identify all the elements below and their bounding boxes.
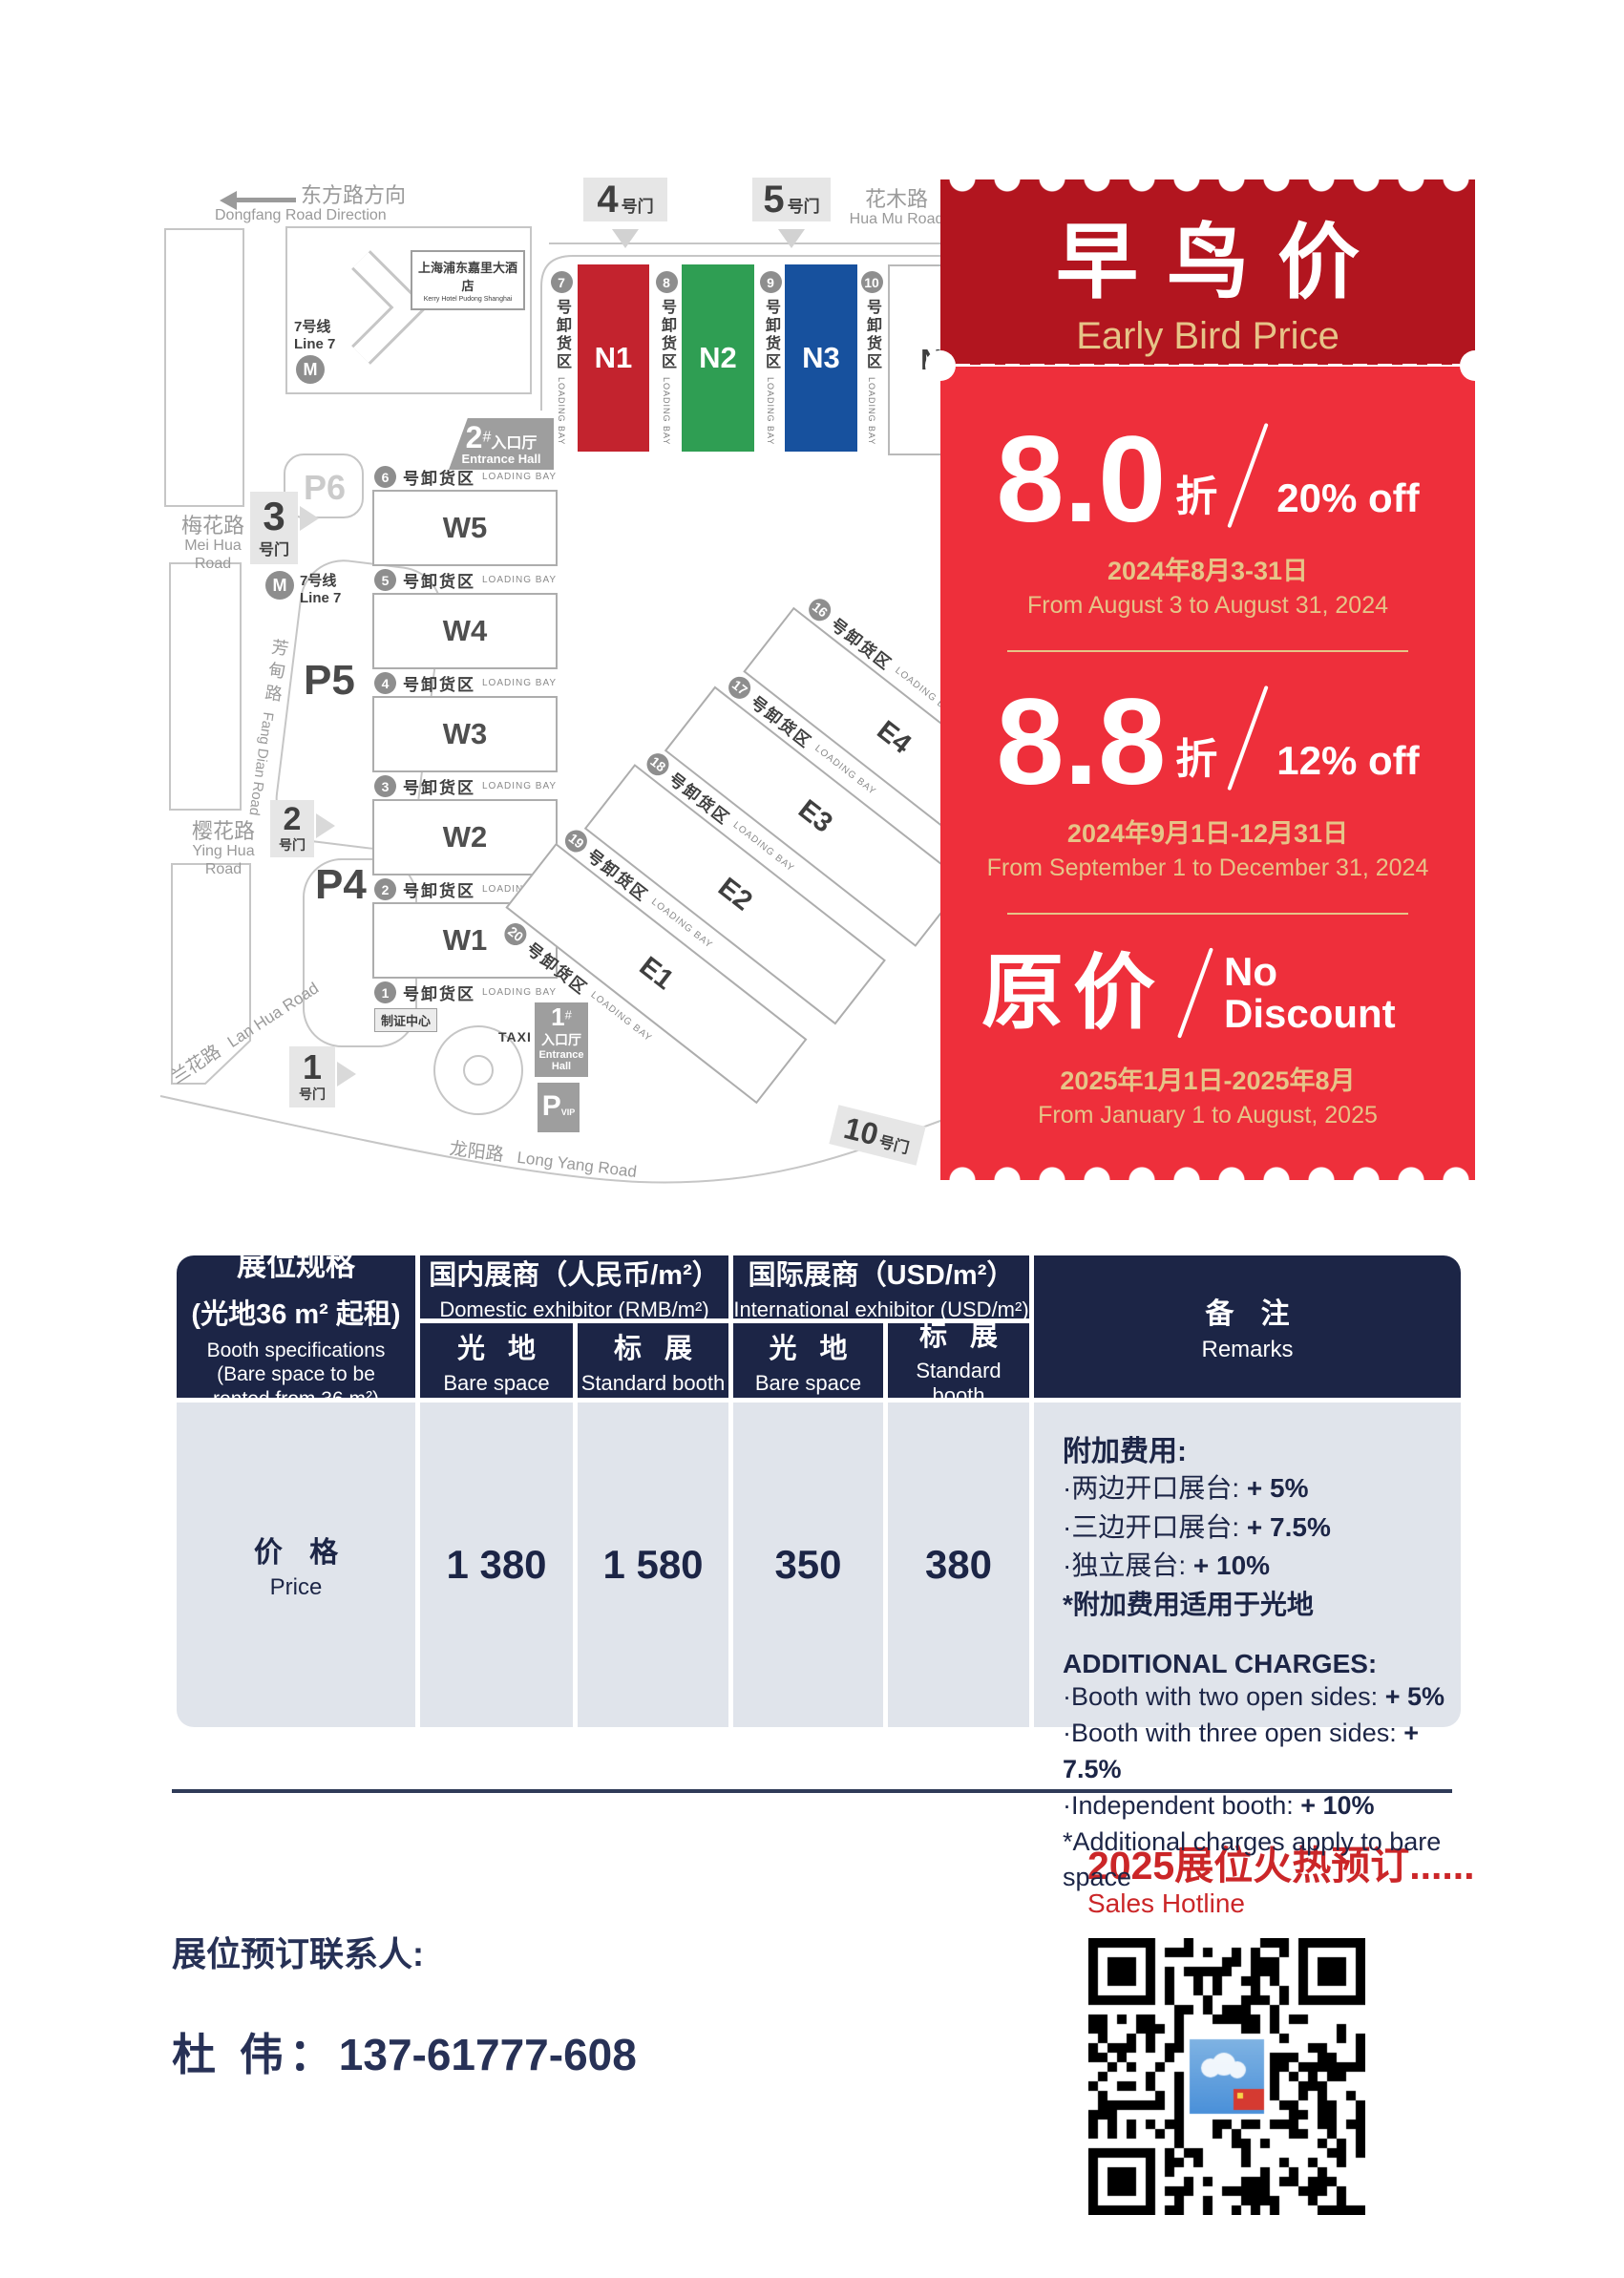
remarks-header-en: Remarks (1201, 1337, 1293, 1363)
loading-bay-1: 1号卸货区LOADING BAY (374, 981, 557, 1004)
subheader-international-bare: 光 地 Bare space (733, 1323, 883, 1398)
ticket-header: 早鸟价 Early Bird Price (940, 179, 1475, 365)
loading-bay-number: 6 (374, 466, 396, 488)
loading-bay-number: 5 (374, 569, 396, 591)
remarks-en-title: ADDITIONAL CHARGES: (1063, 1649, 1451, 1679)
entrance-1-en: Entrance Hall (535, 1049, 588, 1072)
remarks-en-block: ADDITIONAL CHARGES: ·Booth with two open… (1063, 1624, 1451, 1896)
loading-bay-number: 8 (656, 271, 678, 293)
hall-w3: W3 (372, 696, 558, 772)
booth-specs-zh1: 展位规格 (237, 1241, 355, 1284)
loading-bay-en: LOADING BAY (482, 472, 557, 482)
remarks-line: ·三边开口展台: + 7.5% (1063, 1508, 1331, 1548)
entrance-1-number: 1 (551, 1002, 564, 1031)
group-international-zh: 国际展商（USD/m²） (749, 1253, 1015, 1293)
remarks-line: ·Booth with three open sides: + 7.5% (1063, 1716, 1451, 1788)
gate-2-number: 2 (284, 803, 302, 835)
subheader-international-standard: 标 展 Standard booth (888, 1323, 1029, 1398)
loading-bay-zh: 号卸货区 (403, 671, 475, 695)
gate-5-number: 5 (763, 178, 784, 221)
loading-bay-8: 8号卸货区LOADING BAY (653, 271, 680, 445)
loading-bay-zh: 号卸货区 (403, 568, 475, 592)
remarks-en-lines: ·Booth with two open sides: + 5%·Booth w… (1063, 1679, 1451, 1824)
tier1-date-zh: 2024年8月3-31日 (940, 550, 1475, 587)
remarks-line: ·Booth with two open sides: + 5% (1063, 1679, 1451, 1716)
hall-n2: N2 (682, 264, 754, 452)
loading-bay-en: LOADING BAY (482, 575, 557, 585)
loading-bay-10: 10号卸货区LOADING BAY (858, 271, 885, 445)
tier2-date-en: From September 1 to December 31, 2024 (940, 854, 1475, 882)
parking-p4: P4 (315, 861, 367, 909)
road-meihua-en: Mei Hua Road (170, 538, 256, 573)
hall-w2: W2 (372, 799, 558, 875)
entrance-2-en: Entrance Hall (449, 452, 554, 466)
kerry-hotel-zh: 上海浦东嘉里大酒店 (416, 258, 519, 294)
gate-2: 2 号门 (270, 800, 314, 857)
tier1-slash-icon (1228, 423, 1269, 528)
loading-bay-9: 9号卸货区LOADING BAY (757, 271, 784, 445)
parking-p6: P6 (304, 468, 346, 508)
hall-w4: W4 (372, 593, 558, 669)
loading-bay-en: LOADING BAY (557, 377, 566, 445)
price-label-zh: 价 格 (244, 1529, 348, 1571)
loading-bay-en: LOADING BAY (482, 781, 557, 791)
gate-2-suffix: 号门 (279, 835, 306, 854)
loading-bay-zh: 号卸货区 (403, 981, 475, 1004)
loading-bay-number: 1 (374, 981, 396, 1003)
hall-n1: N1 (578, 264, 649, 452)
entrance-hall-1: 1# 入口厅 Entrance Hall (535, 1002, 588, 1077)
ticket-notch-right (1460, 350, 1490, 381)
booth-specs-zh2: (光地36 m² 起租) (191, 1292, 400, 1332)
loading-bay-en: LOADING BAY (662, 377, 671, 445)
ticket-dashed-divider (956, 364, 1460, 367)
tier1-percent-off: 20% off (1276, 475, 1419, 521)
gate-3-suffix: 号门 (259, 537, 289, 559)
gate-5-arrow-icon (778, 229, 805, 262)
booking-contact-label: 展位预订联系人: (172, 1927, 424, 1976)
road-huamu: 花木路 Hua Mu Road (844, 187, 949, 229)
entrance-2-hash: # (482, 430, 491, 446)
loading-bay-en: LOADING BAY (867, 377, 876, 445)
wechat-qr-code (1088, 1938, 1365, 2215)
subheader-domestic-bare: 光 地 Bare space (420, 1323, 573, 1398)
row-label-price: 价 格 Price (177, 1403, 415, 1727)
tier2-percent-off: 12% off (1276, 738, 1419, 784)
road-huamu-zh: 花木路 (844, 187, 949, 211)
contact-line: 杜 伟：137-61777-608 (172, 2020, 637, 2083)
kerry-hotel-en: Kerry Hotel Pudong Shanghai (416, 296, 519, 303)
entrance-1-hash: # (565, 1008, 572, 1023)
booth-specs-en1: Booth specifications (207, 1339, 386, 1362)
taxi-label: TAXI (498, 1029, 532, 1044)
loading-bay-3: 3号卸货区LOADING BAY (374, 774, 557, 798)
loading-bay-zh: 号卸货区 (655, 299, 678, 371)
loading-bay-6: 6号卸货区LOADING BAY (374, 465, 557, 489)
metro-line7-zh-2: 7号线 (300, 573, 336, 589)
loading-bay-zh: 号卸货区 (550, 299, 573, 371)
metro-line7-en-2: Line 7 (300, 590, 341, 606)
sub-bare-zh-2: 光 地 (761, 1326, 854, 1366)
loading-bay-zh: 号卸货区 (860, 299, 883, 371)
remarks-zh-lines: ·两边开口展台: + 5%·三边开口展台: + 7.5%·独立展台: + 10% (1063, 1469, 1331, 1586)
parking-p5: P5 (304, 657, 355, 705)
loading-bay-zh: 号卸货区 (403, 877, 475, 901)
loading-bay-en: LOADING BAY (482, 678, 557, 688)
road-meihua-zh: 梅花路 (170, 514, 256, 538)
gate-1-suffix: 号门 (299, 1085, 326, 1104)
loading-bay-zh: 号卸货区 (403, 774, 475, 798)
loading-bay-number: 9 (760, 271, 782, 293)
road-dongfang-en: Dongfang Road Direction (215, 207, 377, 224)
entrance-1-zh: 入口厅 (535, 1030, 588, 1049)
tier3-no-discount: No Discount (1224, 951, 1434, 1035)
gate-4-arrow-icon (612, 229, 639, 262)
gate-1: 1 号门 (289, 1046, 335, 1107)
road-yinghua-en: Ying Hua Road (176, 843, 271, 878)
metro-line7-label-hotel: 7号线 Line 7 (294, 319, 335, 353)
kerry-hotel-label: 上海浦东嘉里大酒店 Kerry Hotel Pudong Shanghai (411, 250, 525, 310)
price-domestic-standard: 1 580 (578, 1403, 728, 1727)
loading-bay-number: 7 (551, 271, 573, 293)
metro-line7-icon-2: M (265, 571, 294, 600)
sub-standard-zh-1: 标 展 (606, 1326, 700, 1366)
sub-bare-en-1: Bare space (443, 1371, 549, 1396)
tier2-date-zh: 2024年9月1日-12月31日 (940, 812, 1475, 850)
sub-bare-en-2: Bare space (755, 1371, 861, 1396)
credential-center: 制证中心 (374, 1008, 437, 1032)
gate-4-suffix: 号门 (622, 188, 654, 226)
contact-name: 杜 伟： (172, 2030, 339, 2079)
tier3-date-en: From January 1 to August, 2025 (940, 1102, 1475, 1129)
ticket-body: 8.0 折 20% off 2024年8月3-31日 From August 3… (940, 367, 1475, 1180)
road-dongfang-zh: 东方路方向 (301, 183, 377, 207)
tier-original-price: 原价 No Discount 2025年1月1日-2025年8月 From Ja… (940, 945, 1475, 1129)
loading-bay-zh: 号卸货区 (403, 465, 475, 489)
entrance-2-zh: 入口厅 (491, 435, 537, 452)
tier1-date-en: From August 3 to August 31, 2024 (940, 592, 1475, 620)
road-huamu-en: Hua Mu Road (844, 211, 949, 228)
metro-line7-en: Line 7 (294, 336, 335, 352)
gate-3-arrow-icon (300, 506, 331, 531)
price-table: 展位规格 (光地36 m² 起租) Booth specifications (… (177, 1255, 1461, 1727)
loading-bay-4: 4号卸货区LOADING BAY (374, 671, 557, 695)
ticket-title-en: Early Bird Price (940, 315, 1475, 358)
gate-5: 5 号门 (752, 178, 831, 221)
tier3-slash-icon (1177, 947, 1213, 1038)
gate-5-suffix: 号门 (788, 188, 820, 226)
gate-1-number: 1 (303, 1050, 322, 1085)
loading-bay-en: LOADING BAY (482, 987, 557, 998)
tier-early-bird-1: 8.0 折 20% off 2024年8月3-31日 From August 3… (940, 367, 1475, 620)
tier1-discount: 8.0 (996, 431, 1166, 531)
gate-10-number: 10 (840, 1107, 883, 1154)
price-domestic-bare: 1 380 (420, 1403, 573, 1727)
remarks-body: 附加费用: ·两边开口展台: + 5%·三边开口展台: + 7.5%·独立展台:… (1034, 1403, 1461, 1727)
remarks-zh-title: 附加费用: (1063, 1427, 1187, 1469)
loading-bay-en: LOADING BAY (766, 377, 775, 445)
loading-bay-number: 2 (374, 878, 396, 900)
ticket-title-zh: 早鸟价 (940, 179, 1475, 304)
road-meihua: 梅花路 Mei Hua Road (170, 514, 256, 573)
price-label-en: Price (270, 1574, 323, 1601)
sub-standard-en-1: Standard booth (581, 1371, 725, 1396)
ticket-notch-left (925, 350, 956, 381)
tier1-unit: 折 (1175, 462, 1217, 523)
remarks-line: ·Independent booth: + 10% (1063, 1788, 1451, 1825)
vip-parking: PVIP (538, 1083, 580, 1132)
group-domestic-en: Domestic exhibitor (RMB/m²) (439, 1297, 708, 1322)
tier3-label: 原价 (981, 952, 1165, 1034)
tier-early-bird-2: 8.8 折 12% off 2024年9月1日-12月31日 From Sept… (940, 683, 1475, 882)
ticket-divider-gold-1 (1007, 650, 1408, 652)
ticket-divider-gold-2 (1007, 913, 1408, 915)
price-international-standard: 380 (888, 1403, 1029, 1727)
tier2-discount: 8.8 (996, 693, 1166, 793)
vip-parking-p: P (542, 1090, 561, 1122)
gate-4: 4 号门 (583, 178, 667, 221)
gate-1-arrow-icon (337, 1062, 369, 1086)
sub-standard-zh-2: 标 展 (912, 1314, 1005, 1354)
metro-line7-icon: M (296, 355, 325, 384)
contact-phone: 137-61777-608 (339, 2030, 637, 2079)
hall-w5: W5 (372, 490, 558, 566)
sub-standard-en-2: Standard booth (888, 1359, 1029, 1408)
gate-2-arrow-icon (316, 813, 348, 838)
remarks-header-zh: 备 注 (1195, 1290, 1298, 1332)
table-group-domestic: 国内展商（人民币/m²） Domestic exhibitor (RMB/m²) (420, 1255, 728, 1318)
loading-bay-5: 5号卸货区LOADING BAY (374, 568, 557, 592)
table-remarks-header: 备 注 Remarks (1034, 1255, 1461, 1398)
table-group-international: 国际展商（USD/m²） International exhibitor (US… (733, 1255, 1029, 1318)
early-bird-ticket: 早鸟价 Early Bird Price 8.0 折 20% off 2024年… (940, 179, 1475, 1180)
vip-parking-vip: VIP (561, 1107, 576, 1117)
tier3-date-zh: 2025年1月1日-2025年8月 (940, 1060, 1475, 1097)
metro-line7-zh: 7号线 (294, 319, 330, 335)
group-domestic-zh: 国内展商（人民币/m²） (429, 1253, 720, 1293)
loading-bay-number: 3 (374, 775, 396, 797)
remarks-line: ·两边开口展台: + 5% (1063, 1469, 1331, 1508)
road-yinghua-zh: 樱花路 (176, 819, 271, 843)
subheader-domestic-standard: 标 展 Standard booth (578, 1323, 728, 1398)
remarks-en-note: *Additional charges apply to bare space (1063, 1825, 1451, 1897)
entrance-2-number: 2 (466, 420, 483, 454)
table-col-booth-specs: 展位规格 (光地36 m² 起租) Booth specifications (… (177, 1255, 415, 1398)
gate-4-number: 4 (597, 178, 618, 221)
remarks-line: ·独立展台: + 10% (1063, 1547, 1331, 1586)
hall-n3: N3 (785, 264, 857, 452)
remarks-zh-note: *附加费用适用于光地 (1063, 1586, 1314, 1625)
loading-bay-number: 4 (374, 672, 396, 694)
gate-3: 3 号门 (250, 492, 298, 564)
loading-bay-number: 10 (861, 271, 883, 293)
gate-10-suffix: 号门 (875, 1126, 913, 1167)
road-dongfang: 东方路方向 Dongfang Road Direction (215, 183, 377, 225)
road-yinghua: 樱花路 Ying Hua Road (176, 819, 271, 878)
metro-line7-label-2: 7号线 Line 7 (300, 573, 341, 607)
flyer-page: 东方路方向 Dongfang Road Direction 4 号门 5 号门 … (0, 0, 1624, 2278)
gate-3-number: 3 (263, 496, 285, 537)
loading-bay-zh: 号卸货区 (759, 299, 782, 371)
tier2-unit: 折 (1175, 725, 1217, 786)
sub-bare-zh-1: 光 地 (450, 1326, 543, 1366)
price-international-bare: 350 (733, 1403, 883, 1727)
tier2-slash-icon (1228, 686, 1269, 791)
